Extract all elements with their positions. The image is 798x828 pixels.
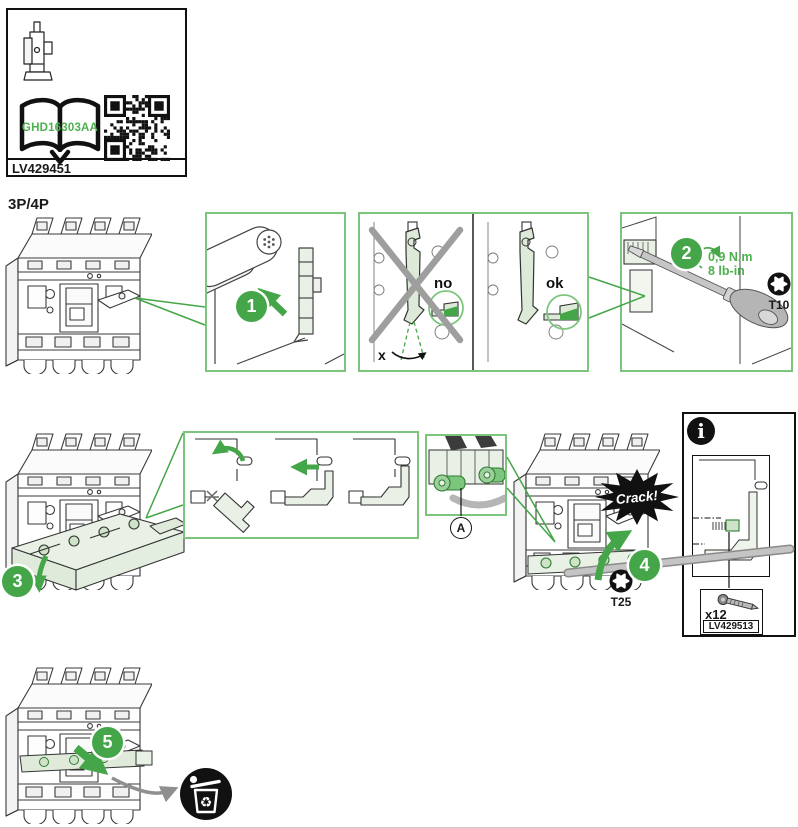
insert-arrow-icon: [264, 294, 285, 314]
step1-detail-drawing: [207, 214, 344, 370]
breaker-illustration-step1: [2, 214, 152, 374]
step-4-badge: 4: [629, 550, 660, 581]
info-drawing-box: [692, 455, 770, 577]
info-icon: i: [687, 417, 715, 445]
detail-panel-step1: [205, 212, 346, 372]
angle-arc-arrow-icon: [392, 352, 424, 359]
pole-heading: 3P/4P: [8, 196, 49, 213]
torque-metric: 0,9 N.m: [708, 250, 752, 264]
qr-code: [104, 95, 170, 161]
sequence-figure-rotate: [191, 439, 261, 532]
right-position-figure: ok: [488, 222, 581, 362]
info-panel: i: [682, 412, 796, 637]
screwdriver-shaft-icon: [453, 498, 505, 505]
step-3-badge: 3: [2, 566, 33, 597]
wrong-label: no: [434, 275, 452, 292]
screw-kit-box: x12 LV429513: [700, 589, 763, 635]
step-1-badge: 1: [236, 291, 267, 322]
detail-a-drawing: [427, 436, 505, 514]
torque-imperial: 8 lb-in: [708, 264, 745, 278]
sequence-figure-slide: [271, 439, 333, 505]
detail-a-badge: A: [450, 517, 472, 539]
angle-label: x: [378, 347, 386, 363]
mounting-sequence-drawing: [185, 433, 417, 537]
document-reference: GHD16303AA: [15, 122, 105, 134]
right-label: ok: [546, 275, 564, 292]
recycle-bin-icon: ♻: [178, 766, 234, 822]
detail-panel-a: [425, 434, 507, 516]
interlock-part-icon: [14, 20, 64, 86]
torx-t10: T10: [763, 271, 795, 312]
part-number: LV429451: [8, 158, 185, 175]
recycle-symbol: ♻: [200, 794, 213, 810]
highlighted-screw: [726, 520, 739, 531]
step-2-badge: 2: [671, 238, 702, 269]
sequence-figure-final: [349, 439, 410, 505]
info-drawing: [693, 456, 768, 575]
breaker-illustration-step5: [2, 664, 157, 824]
alignment-check-drawing: no x ok: [360, 214, 587, 370]
bit-size-label: T25: [605, 595, 637, 609]
product-label-box: GHD16303AA LV429451: [6, 8, 187, 177]
crack-burst-icon: Crack!: [591, 467, 683, 527]
kit-reference: LV429513: [703, 620, 759, 633]
instruction-sheet: GHD16303AA LV429451 3P/4P: [0, 0, 798, 828]
breaker-illustration-step3: [0, 428, 196, 628]
alignment-check-panel: no x ok: [358, 212, 589, 372]
wrong-position-figure: no x: [372, 222, 463, 363]
mounting-sequence-panel: [183, 431, 419, 539]
bit-size-label: T10: [763, 298, 795, 312]
step-5-badge: 5: [92, 727, 123, 758]
torx-bit-icon: [766, 271, 792, 297]
